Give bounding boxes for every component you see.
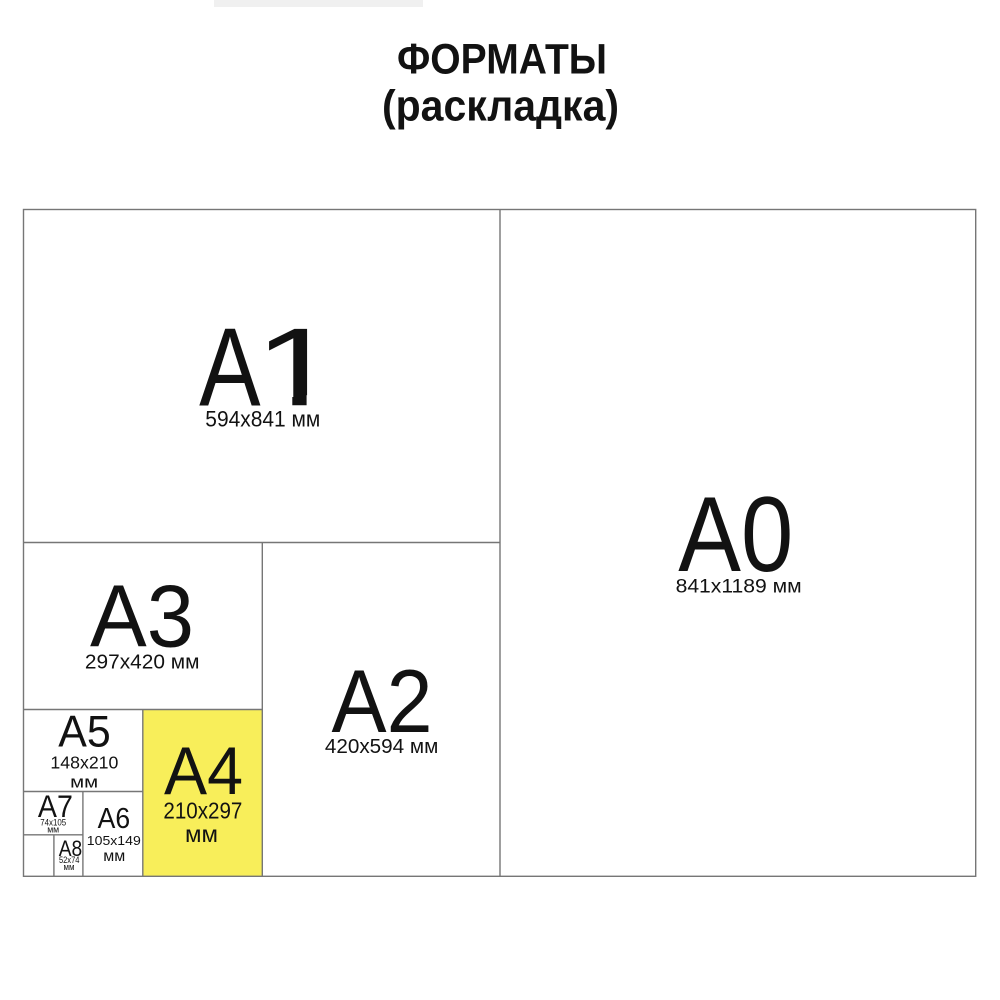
svg-text:мм: мм <box>103 848 125 865</box>
svg-text:(раскладка): (раскладка) <box>382 82 619 130</box>
svg-text:148x210: 148x210 <box>50 753 118 773</box>
svg-text:ФОРМАТЫ: ФОРМАТЫ <box>397 37 607 84</box>
svg-text:594x841 мм: 594x841 мм <box>205 406 320 431</box>
svg-text:мм: мм <box>47 825 59 835</box>
svg-text:мм: мм <box>64 862 75 872</box>
svg-text:мм: мм <box>185 821 218 847</box>
svg-text:мм: мм <box>70 773 98 791</box>
svg-text:A5: A5 <box>58 708 111 757</box>
svg-text:210x297: 210x297 <box>163 798 242 824</box>
svg-text:105x149: 105x149 <box>87 833 141 848</box>
svg-text:841x1189 мм: 841x1189 мм <box>676 576 802 598</box>
svg-text:A6: A6 <box>98 803 131 835</box>
svg-text:297x420 мм: 297x420 мм <box>85 651 200 673</box>
svg-text:420x594 мм: 420x594 мм <box>325 736 439 758</box>
